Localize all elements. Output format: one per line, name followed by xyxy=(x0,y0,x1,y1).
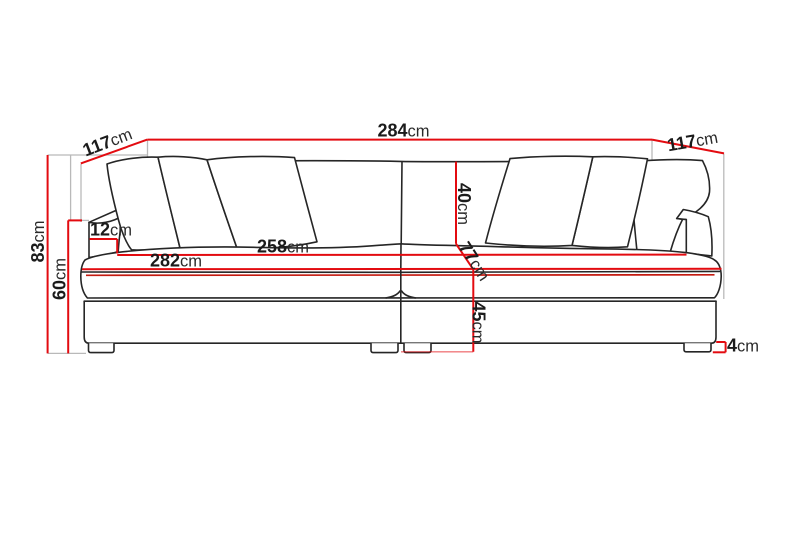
label-arm-width: 12cm xyxy=(90,220,132,240)
armrest-right xyxy=(677,210,712,257)
label-seat-width: 282cm xyxy=(150,251,202,271)
label-backrest-height: 40cm xyxy=(454,183,474,225)
label-leg-height: 4cm xyxy=(727,336,759,356)
backrest-center-seam xyxy=(401,162,402,244)
label-overall-height: 83cm xyxy=(28,220,48,262)
label-arm-height: 60cm xyxy=(50,258,70,300)
diagram-canvas: 284cm 117cm 117cm 83cm 60cm 12cm 258cm 2… xyxy=(0,0,800,533)
leg-left xyxy=(89,343,115,352)
leg-right xyxy=(684,343,711,352)
label-overall-width: 284cm xyxy=(377,121,429,141)
label-inner-seat-width: 258cm xyxy=(257,237,309,257)
sofa-dimension-diagram: 284cm 117cm 117cm 83cm 60cm 12cm 258cm 2… xyxy=(0,0,800,533)
label-seat-height: 45cm xyxy=(469,301,489,343)
leg-center-left xyxy=(371,343,398,352)
